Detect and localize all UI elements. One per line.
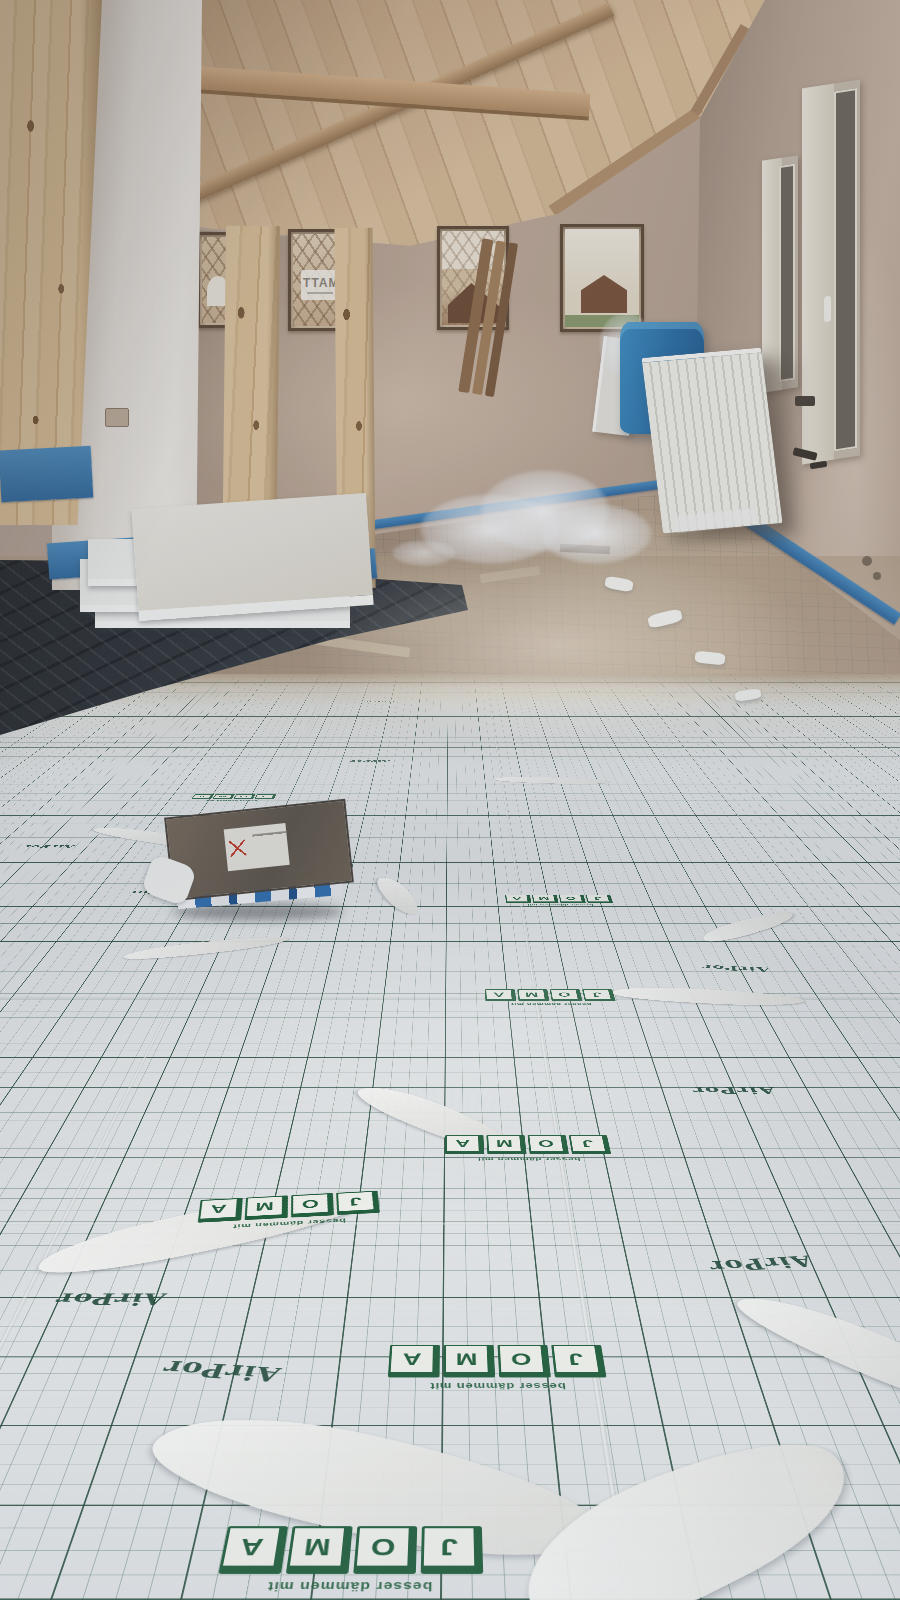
- joma-letter: A: [505, 895, 531, 903]
- joma-letter: A: [218, 1526, 288, 1574]
- joma-caption: besser dämmen mit: [477, 1156, 581, 1161]
- joma-letter: A: [485, 989, 516, 1001]
- electrical-outlet: [105, 408, 129, 427]
- joma-logo: besser dämmen mit J O M A: [190, 794, 276, 801]
- joma-letter: A: [388, 1345, 440, 1378]
- joma-letters: J O M A: [485, 989, 616, 1001]
- plastic-wrap-pile: [420, 462, 660, 587]
- joma-letters: J O M A: [191, 794, 276, 799]
- joma-caption: besser dämmen mit: [527, 904, 594, 906]
- airpor-print: AirPor: [349, 760, 390, 763]
- tape-scrap: [691, 909, 805, 944]
- joma-logo: besser dämmen mit J O M A: [214, 1526, 483, 1593]
- insulation-board-top: [131, 493, 373, 621]
- joma-caption: besser dämmen mit: [511, 1002, 592, 1005]
- joma-logo: besser dämmen mit J O M A: [485, 989, 617, 1005]
- joma-letter: O: [353, 1526, 417, 1574]
- tape-scrap: [122, 934, 292, 963]
- airpor-print: AirPor: [158, 1356, 284, 1387]
- joma-letter: A: [568, 691, 575, 692]
- joma-letter: O: [559, 895, 586, 903]
- joma-letters: J O M A: [445, 1135, 611, 1154]
- tape-scrap: [725, 1284, 900, 1438]
- leaning-radiator: [641, 347, 782, 533]
- airpor-print: AirPor: [701, 963, 771, 973]
- airpor-print: AirPor: [20, 845, 76, 849]
- joma-logo: besser dämmen mit J O M A: [505, 895, 614, 906]
- joma-letter: J: [582, 989, 616, 1001]
- joma-letter: O: [497, 1345, 550, 1378]
- joma-letter: J: [585, 895, 613, 903]
- joma-letter: J: [421, 1526, 484, 1574]
- joma-letter: O: [528, 1135, 569, 1154]
- joma-letter: J: [569, 1135, 612, 1154]
- panel-seam: [626, 674, 900, 1600]
- joma-letter: M: [212, 794, 234, 799]
- airpor-panel-plane: besser dämmen mit J O M A besser dämmen …: [0, 674, 900, 1600]
- joma-letter: J: [590, 691, 597, 692]
- joma-letter: A: [445, 1135, 484, 1154]
- joma-caption: besser dämmen mit: [429, 1381, 566, 1390]
- insulation-board-stack: [80, 495, 380, 640]
- construction-site-photo: MATT: [0, 0, 900, 1600]
- joma-letter: O: [233, 794, 255, 799]
- tape-scrap: [371, 876, 425, 915]
- joma-letter: M: [532, 895, 559, 903]
- plastic-blob: [540, 504, 652, 564]
- plastic-blob: [392, 540, 456, 566]
- joma-logo: besser dämmen mit J O M A: [197, 1191, 381, 1232]
- tape-scrap: [611, 984, 807, 1008]
- joma-letter: M: [486, 1135, 526, 1154]
- joma-letter: M: [286, 1526, 353, 1574]
- airpor-print: AirPor: [705, 1252, 818, 1276]
- joma-letters: J O M A: [218, 1526, 483, 1574]
- post-base-tape: [0, 446, 93, 503]
- joma-letter: O: [550, 989, 583, 1001]
- tape-scrap: [492, 776, 609, 785]
- joma-letters: J O M A: [568, 691, 597, 692]
- joma-letters: J O M A: [388, 1345, 607, 1378]
- joma-letter: O: [583, 691, 590, 692]
- airpor-print: AirPor: [51, 1290, 169, 1309]
- joma-letter: J: [254, 794, 276, 799]
- joma-letter: J: [336, 1191, 380, 1215]
- airpor-print: AirPor: [690, 1085, 778, 1096]
- joma-letters: J O M A: [505, 895, 613, 903]
- joma-letter: M: [517, 989, 549, 1001]
- joma-logo: besser dämmen mit J O M A: [445, 1135, 613, 1161]
- joma-caption: besser dämmen mit: [266, 1579, 432, 1593]
- joma-logo: besser dämmen mit J O M A: [387, 1345, 609, 1391]
- joma-letter: M: [444, 1345, 496, 1378]
- joma-logo: besser dämmen mit J O M A: [364, 701, 394, 703]
- joma-letter: A: [191, 794, 214, 799]
- joma-letter: O: [291, 1193, 334, 1218]
- supplies-box: [168, 808, 352, 922]
- joma-letter: A: [198, 1198, 243, 1223]
- joma-letter: M: [245, 1195, 288, 1220]
- joma-letter: M: [575, 691, 582, 692]
- box-label: [224, 823, 290, 871]
- joma-caption: besser dämmen mit: [206, 800, 258, 801]
- joma-letter: J: [551, 1345, 606, 1378]
- joma-letters: J O M A: [198, 1191, 380, 1223]
- joma-logo: besser dämmen mit J O M A: [568, 691, 598, 693]
